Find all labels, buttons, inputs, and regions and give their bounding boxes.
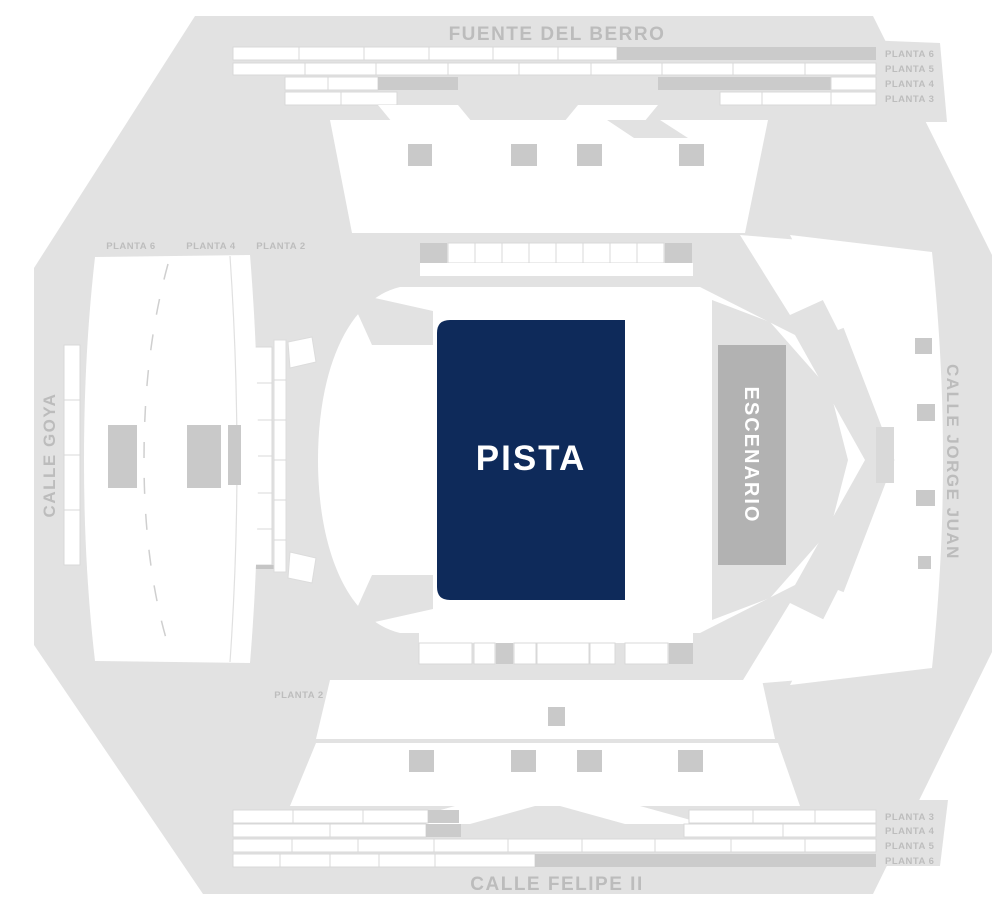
seat-strip: [274, 340, 286, 572]
stand-wing: [288, 337, 316, 368]
stage-label: ESCENARIO: [740, 387, 762, 524]
gate-mark: [917, 404, 935, 421]
street-label-right: CALLE JORGE JUAN: [943, 364, 962, 560]
seat-cell-filled: [496, 643, 513, 664]
street-label-left: CALLE GOYA: [40, 393, 59, 518]
level-label: PLANTA 3: [885, 812, 934, 823]
seat-cells: [590, 643, 615, 664]
seat-row: [233, 839, 876, 852]
seat-row-filled: [428, 810, 459, 823]
level-label: PLANTA 3: [885, 94, 934, 105]
seat-row-filled: [535, 854, 876, 867]
seat-row: [233, 63, 876, 75]
vomitory-entrance: [409, 750, 434, 772]
seat-row: [233, 854, 535, 867]
seat-cell-filled: [665, 243, 692, 263]
level-label: PLANTA 4: [186, 241, 236, 252]
seat-row-filled: [617, 47, 876, 60]
stage: ESCENARIO: [718, 345, 786, 565]
seat-row-filled: [658, 77, 831, 90]
level-label: PLANTA 6: [885, 49, 934, 60]
vomitory-entrance: [679, 144, 704, 166]
seat-cell-filled: [669, 643, 693, 664]
seat-row: [831, 77, 876, 90]
level-label: PLANTA 4: [885, 79, 935, 90]
seat-row: [285, 77, 378, 90]
vomitory-entrance: [408, 144, 432, 166]
seat-row: [233, 47, 617, 60]
seat-map-svg: ESCENARIO PISTA FUENTE DEL BERRO CALLE F…: [0, 0, 998, 907]
aisle-channel: [564, 105, 658, 122]
vomitory-entrance: [228, 425, 241, 485]
seat-cells: [419, 643, 472, 664]
concourse-strip: [419, 631, 693, 643]
north-planta2-band: [420, 243, 693, 276]
level-label: PLANTA 4: [885, 826, 935, 837]
vomitory-entrance: [577, 144, 602, 166]
level-label: PLANTA 6: [885, 856, 934, 867]
south-stand: [290, 680, 800, 824]
vomitory-entrance: [187, 425, 221, 488]
vomitory-entrance: [678, 750, 703, 772]
vomitory-entrance: [548, 707, 565, 726]
west-grandstand: [64, 255, 258, 663]
concourse-strip: [420, 263, 693, 276]
north-stand: [330, 120, 768, 233]
south-planta2-band: [419, 631, 693, 664]
aisle-channel: [378, 105, 472, 122]
pista: PISTA: [437, 320, 706, 600]
street-label-top: FUENTE DEL BERRO: [449, 24, 666, 45]
stand-wing: [288, 552, 316, 583]
level-label: PLANTA 6: [106, 241, 155, 252]
seat-cells: [474, 643, 495, 664]
gate-mark: [915, 338, 932, 354]
seat-cells: [537, 643, 589, 664]
vomitory-entrance: [577, 750, 602, 772]
level-label: PLANTA 5: [885, 64, 935, 75]
vomitory-entrance: [511, 750, 536, 772]
seat-row-filled: [378, 77, 458, 90]
seat-row: [684, 824, 876, 837]
vomitory-entrance: [108, 425, 137, 488]
seat-cells: [625, 643, 668, 664]
venue-seat-map: ESCENARIO PISTA FUENTE DEL BERRO CALLE F…: [0, 0, 998, 907]
gate-mark: [918, 556, 931, 569]
seat-row-filled: [426, 824, 461, 837]
level-label: PLANTA 2: [274, 690, 323, 701]
seat-row: [233, 810, 428, 823]
seat-cells: [514, 643, 536, 664]
seat-cell-filled: [420, 243, 447, 263]
pista-label: PISTA: [476, 439, 586, 478]
pista-unshaded-zone: [625, 320, 706, 600]
gate-mark: [916, 490, 935, 506]
street-label-bottom: CALLE FELIPE II: [470, 874, 643, 895]
vomitory-entrance: [511, 144, 537, 166]
level-label: PLANTA 5: [885, 841, 935, 852]
east-gate-tab: [876, 427, 894, 483]
seat-row: [720, 92, 876, 105]
level-label: PLANTA 2: [256, 241, 305, 252]
seat-row: [689, 810, 876, 823]
